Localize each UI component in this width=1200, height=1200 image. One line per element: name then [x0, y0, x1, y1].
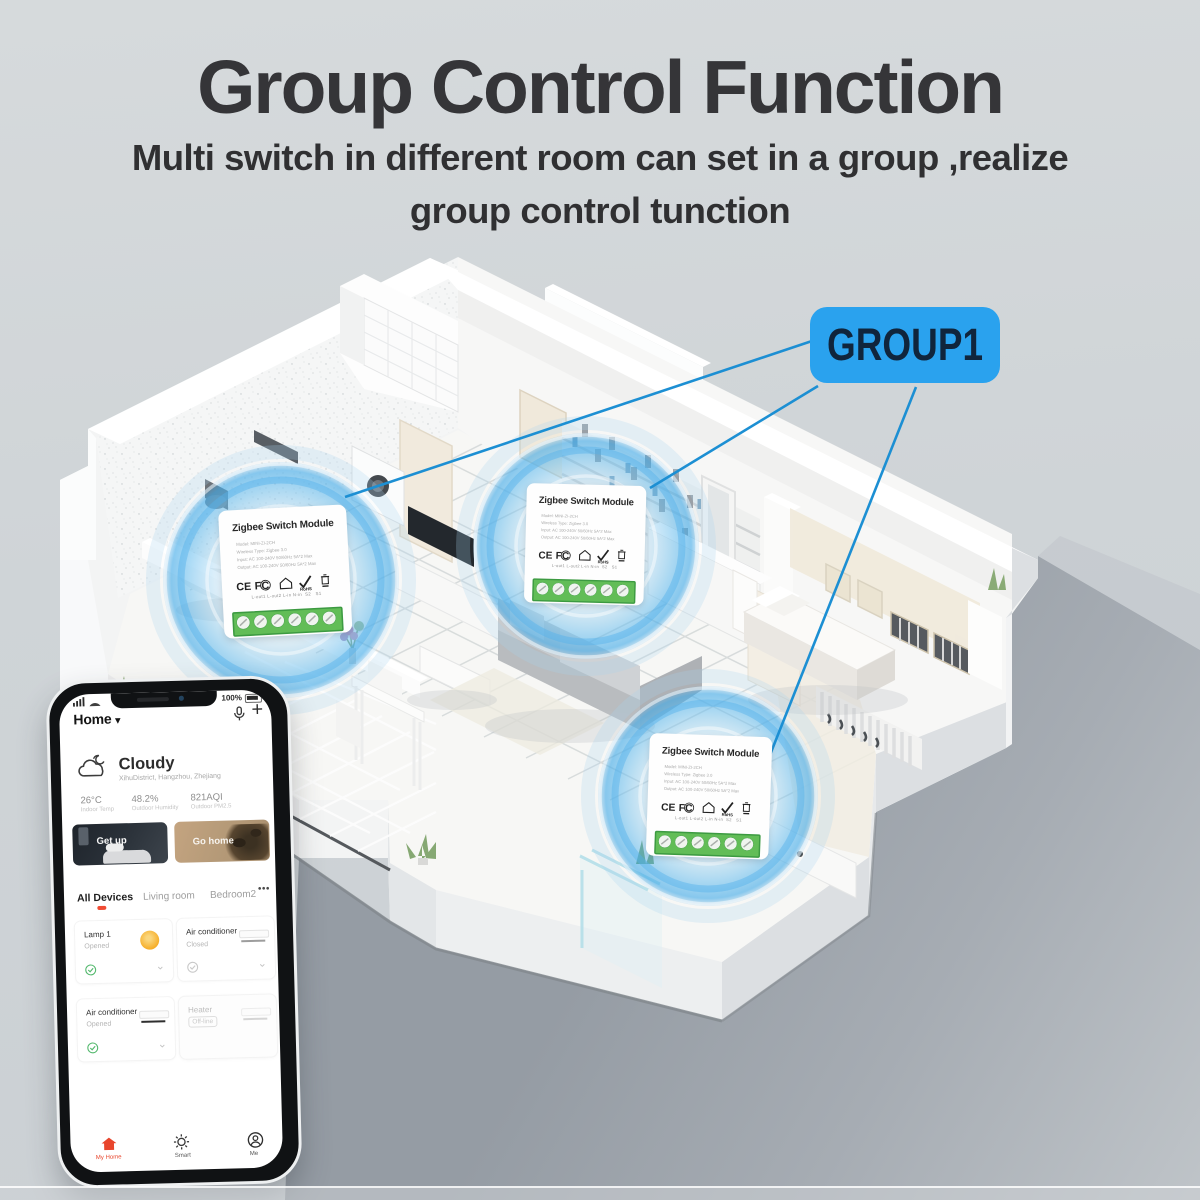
svg-text:GROUP1: GROUP1 [827, 319, 983, 370]
svg-text:C: C [685, 803, 693, 814]
svg-text:CE: CE [538, 550, 553, 561]
svg-text:CE: CE [661, 802, 676, 813]
svg-text:CE: CE [236, 581, 252, 594]
svg-text:C: C [562, 551, 570, 562]
